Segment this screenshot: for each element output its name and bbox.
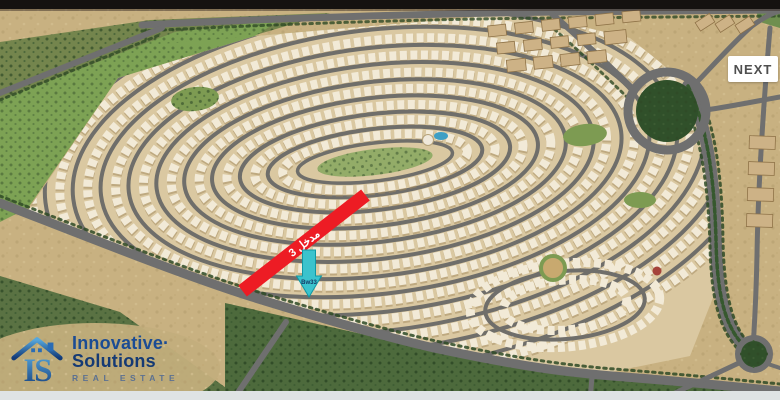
- roundabout-large: [628, 72, 706, 150]
- next-button[interactable]: NEXT: [728, 56, 778, 82]
- unit-marker-label: Bw33: [301, 280, 317, 286]
- brand-tagline: REAL ESTATE: [72, 374, 179, 383]
- roundabout-small: [738, 338, 770, 370]
- brand-logo: IS Innovative· Solutions REAL ESTATE: [8, 329, 179, 387]
- monogram-text: IS: [23, 353, 51, 387]
- top-letterbox-bar: [0, 0, 780, 9]
- top-bar-edge: [0, 9, 780, 11]
- bottom-letterbox-bar: [0, 391, 780, 400]
- house-monogram-icon: IS: [8, 329, 66, 387]
- masterplan-viewer: مدخل 3 Bw33 NEXT IS Innovative· Solution: [0, 0, 780, 400]
- brand-name-line2: Solutions: [72, 352, 179, 370]
- brand-dot: ·: [163, 333, 169, 353]
- brand-name-line1: Innovative·: [72, 334, 179, 352]
